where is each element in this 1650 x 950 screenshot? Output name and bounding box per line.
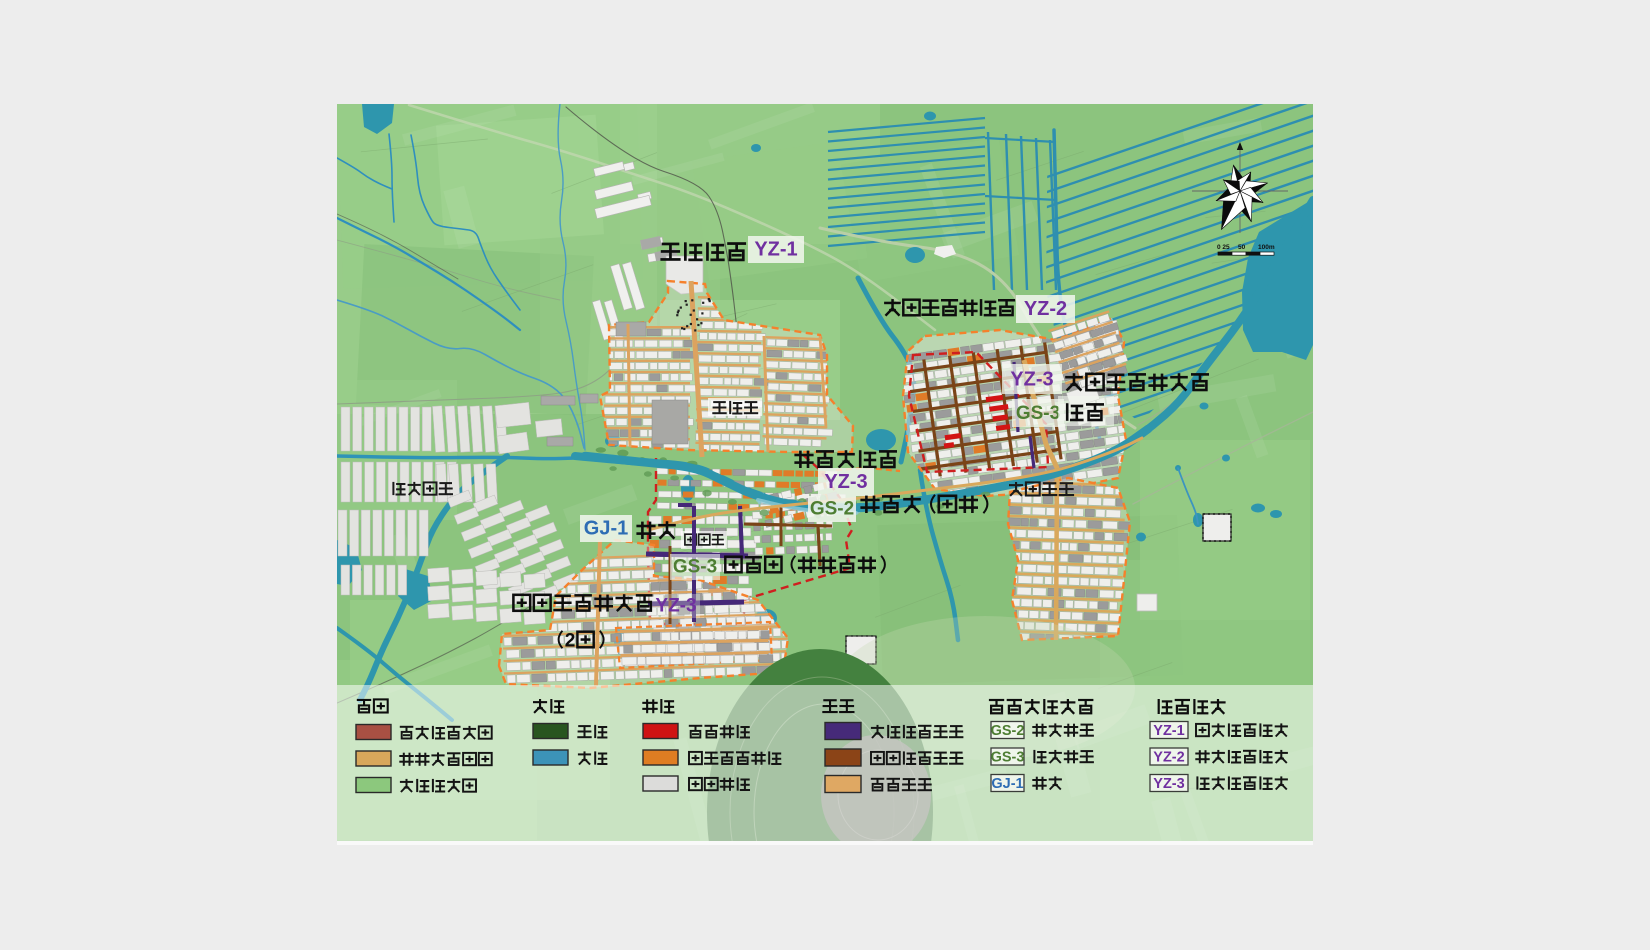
svg-text:YZ-1: YZ-1 [754,238,797,260]
svg-text:50: 50 [1238,244,1246,251]
svg-text:2: 2 [565,630,576,651]
svg-text:GS-3: GS-3 [1016,403,1060,424]
svg-text:GJ-1: GJ-1 [991,776,1023,792]
svg-text:YZ-3: YZ-3 [1153,776,1184,792]
svg-text:GS-3: GS-3 [991,750,1025,766]
svg-text:0 25: 0 25 [1217,244,1230,251]
svg-text:YZ-2: YZ-2 [1024,298,1067,320]
svg-text:YZ-3: YZ-3 [655,595,696,616]
svg-text:YZ-3: YZ-3 [824,471,867,493]
svg-text:YZ-3: YZ-3 [1010,369,1053,391]
svg-text:GS-2: GS-2 [991,723,1025,739]
svg-text:GS-3: GS-3 [673,557,717,578]
svg-text:100m: 100m [1258,244,1275,251]
svg-text:YZ-2: YZ-2 [1153,750,1184,766]
svg-text:GS-2: GS-2 [810,499,854,520]
svg-text:GJ-1: GJ-1 [584,517,628,539]
svg-text:YZ-1: YZ-1 [1153,723,1184,739]
